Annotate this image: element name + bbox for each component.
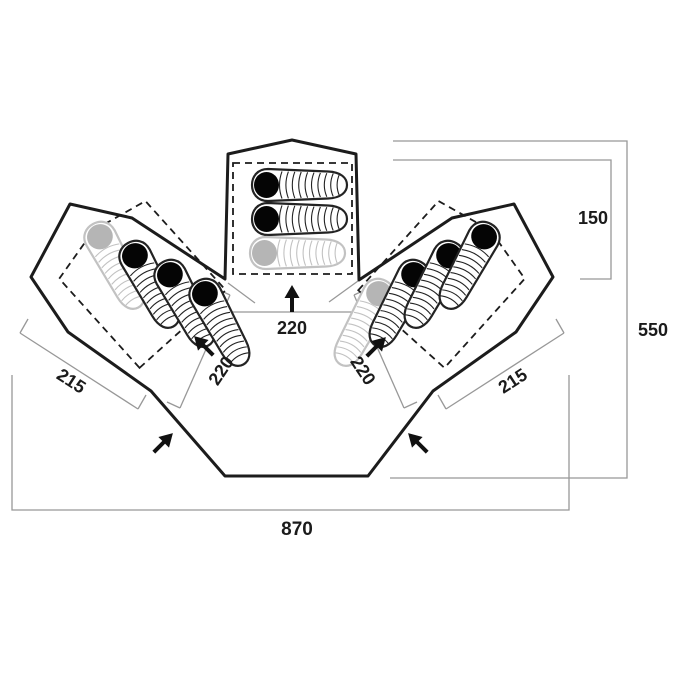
dimension-label-left-215: 215 bbox=[53, 364, 89, 397]
dimension-line-right-215 bbox=[438, 319, 564, 409]
center-pod-bags bbox=[250, 169, 347, 269]
tent-floorplan-svg: 220 220 220 215 215 150 550 870 bbox=[0, 0, 674, 674]
dimension-line-left-215 bbox=[20, 319, 146, 409]
dimension-label-150: 150 bbox=[578, 208, 608, 228]
porch-left-door-arrow bbox=[149, 428, 179, 458]
tent-floorplan-page: 220 220 220 215 215 150 550 870 bbox=[0, 0, 674, 674]
dimension-label-550: 550 bbox=[638, 320, 668, 340]
sleeping-bag bbox=[252, 169, 347, 201]
dimension-label-right-215: 215 bbox=[495, 364, 531, 397]
dimension-label-center-220: 220 bbox=[277, 318, 307, 338]
sleeping-bag bbox=[252, 203, 347, 235]
porch-right-door-arrow bbox=[403, 428, 433, 458]
right-pod-bags bbox=[327, 216, 505, 372]
center-pod-entrance-arrow bbox=[285, 285, 300, 312]
sleeping-bag-faded bbox=[250, 237, 345, 269]
dimension-label-870: 870 bbox=[281, 519, 313, 540]
dimension-line-870 bbox=[12, 375, 569, 510]
left-pod-bags bbox=[79, 216, 257, 372]
